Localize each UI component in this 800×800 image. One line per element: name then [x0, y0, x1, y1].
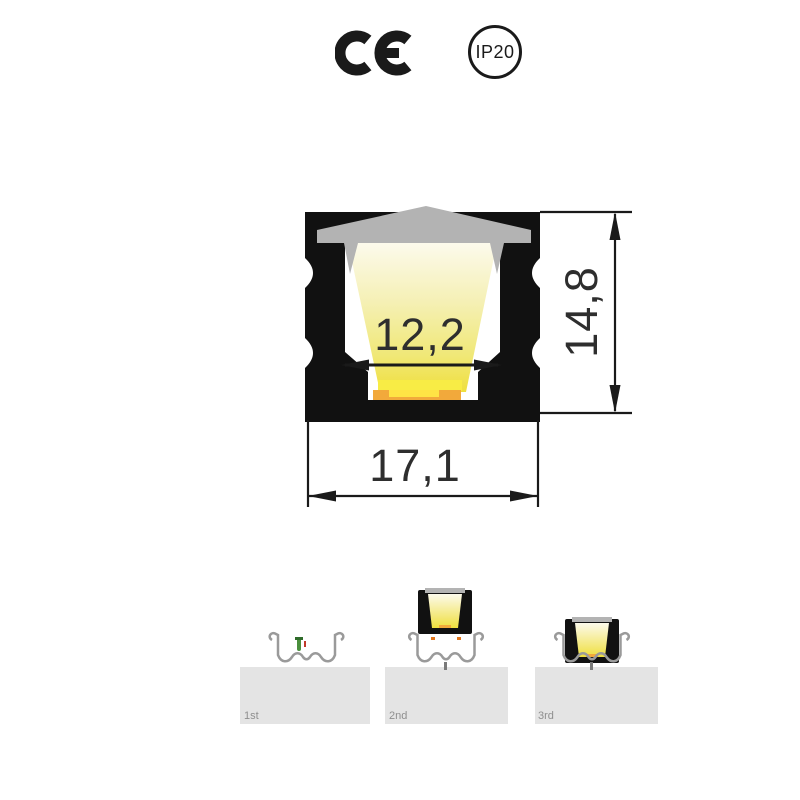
step-1-label: 1st [244, 710, 259, 722]
installation-step-3: 3rd [535, 617, 658, 724]
led-glow [378, 380, 462, 391]
screw-head-icon [295, 637, 303, 640]
outer-width-value: 17,1 [369, 440, 461, 491]
installation-step-2: 2nd [385, 588, 508, 724]
dimension-arrowhead-up [610, 212, 621, 240]
screw-icon [590, 662, 593, 670]
mounting-clip-icon [270, 633, 344, 661]
screw-tip-icon [304, 641, 306, 647]
installation-step-1: 1st [240, 633, 370, 724]
dimension-arrowhead-down [610, 385, 621, 413]
screw-icon [444, 662, 447, 670]
mounting-clip-icon [409, 633, 483, 661]
ip-rating-badge: IP20 [468, 25, 522, 79]
ce-letter-c [340, 36, 368, 70]
profile-cross-section-drawing: 12,2 17,1 14,8 [290, 195, 640, 515]
ce-mark-icon [335, 27, 420, 79]
step-2-label: 2nd [389, 710, 407, 722]
height-value: 14,8 [556, 266, 607, 358]
dimension-arrowhead-right [510, 491, 538, 502]
mini-profile-icon [565, 617, 619, 663]
ip-rating-label: IP20 [475, 42, 514, 63]
mini-profile-icon [418, 588, 472, 634]
dimension-arrowhead-left [308, 491, 336, 502]
step-3-label: 3rd [538, 710, 554, 722]
installation-steps-diagram: 1st 2nd 3rd [230, 575, 670, 735]
led-strip-highlight [389, 390, 439, 397]
inner-width-value: 12,2 [374, 309, 466, 360]
mounting-surface [240, 667, 370, 724]
diffuser-cover [317, 206, 531, 243]
